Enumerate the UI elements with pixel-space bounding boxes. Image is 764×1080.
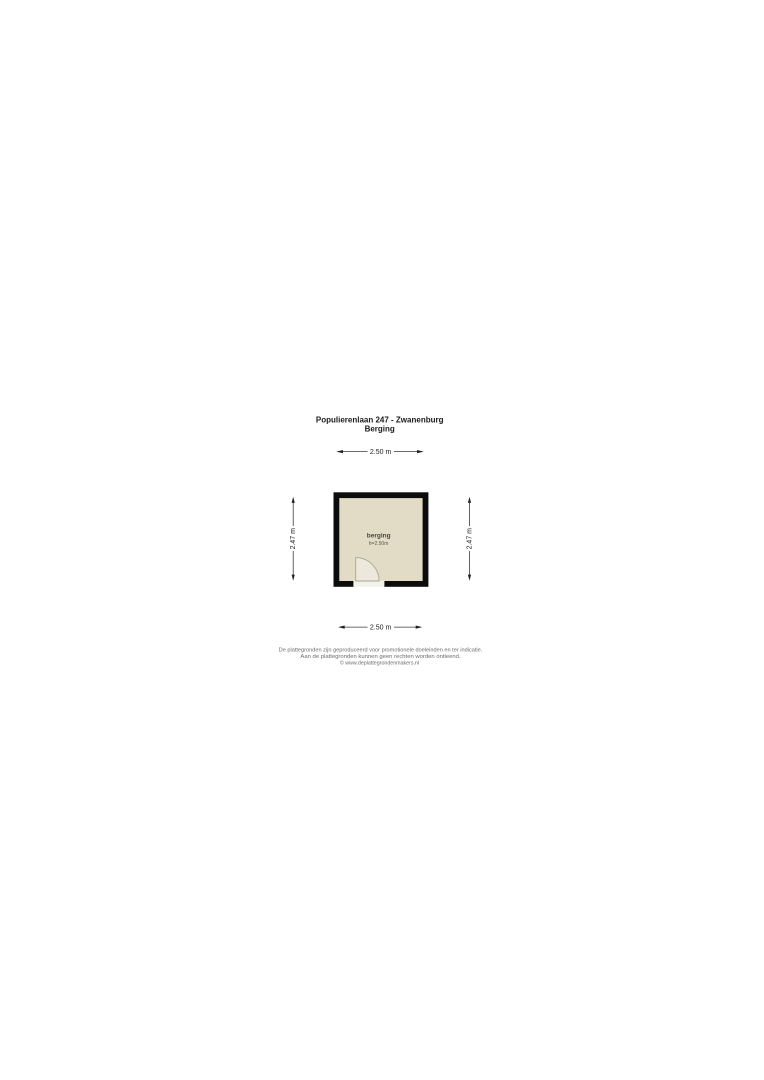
- svg-text:2.50 m: 2.50 m: [370, 449, 392, 456]
- svg-text:De plattegronden zijn geproduc: De plattegronden zijn geproduceerd voor …: [279, 647, 483, 653]
- svg-text:berging: berging: [367, 533, 391, 540]
- svg-text:h=2.50m: h=2.50m: [369, 541, 389, 547]
- svg-text:2.47 m: 2.47 m: [466, 528, 473, 550]
- svg-text:© www.deplattegrondenmakers.nl: © www.deplattegrondenmakers.nl: [340, 659, 419, 666]
- svg-text:Berging: Berging: [365, 425, 395, 434]
- svg-text:Aan de plattegronden kunnen ge: Aan de plattegronden kunnen geen rechten…: [300, 654, 461, 660]
- svg-text:2.47 m: 2.47 m: [290, 528, 297, 550]
- svg-text:2.50 m: 2.50 m: [370, 625, 392, 632]
- svg-text:Populierenlaan 247 - Zwanenbur: Populierenlaan 247 - Zwanenburg: [316, 416, 444, 425]
